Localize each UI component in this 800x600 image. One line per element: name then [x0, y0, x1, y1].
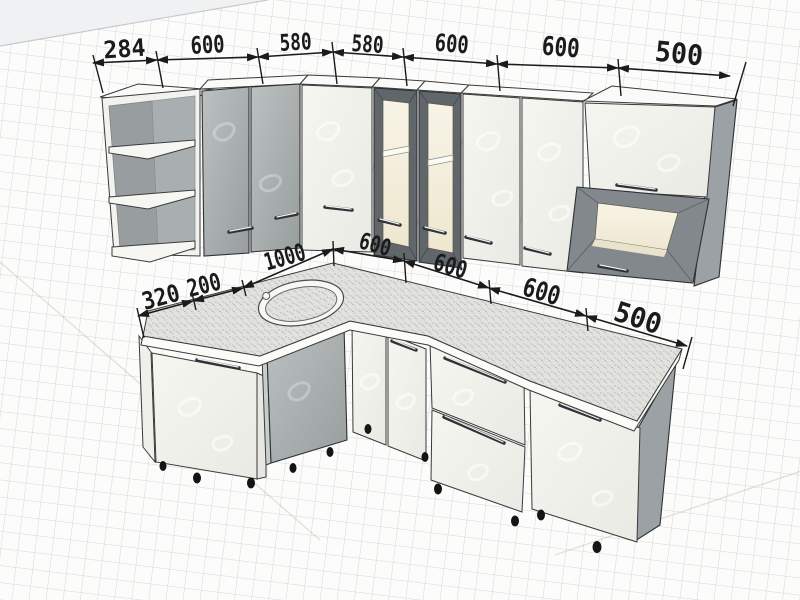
cabinet-foot [160, 461, 167, 471]
cabinet-foot [434, 484, 442, 495]
wall-cabinets [100, 75, 737, 286]
cabinet-foot [365, 424, 372, 434]
angled-door [152, 353, 257, 479]
extension-line [333, 241, 334, 266]
cabinet-foot [511, 516, 519, 527]
wall-glass-cabinet-2 [419, 91, 461, 268]
kitchen-drawing: 284 600 580 580 600 600 500 [0, 0, 800, 600]
wall-corner-door-cabinet [302, 85, 372, 252]
cabinet-foot [537, 510, 545, 521]
cabinet-foot [422, 452, 429, 462]
cabinet-foot [193, 473, 201, 484]
cabinet-foot [247, 478, 255, 489]
dim-label-wall-0: 284 [103, 34, 147, 65]
dim-label-wall-1: 600 [190, 30, 225, 60]
flip-up-door [585, 103, 715, 197]
dim-label-wall-4: 600 [434, 29, 470, 60]
dim-label-wall-2: 580 [279, 29, 312, 57]
gray-door [251, 84, 300, 252]
corner-door [302, 85, 372, 252]
shelf-unit-back-right [152, 96, 195, 250]
wall-white-double-door-cabinet [463, 94, 583, 273]
wall-cabinet-gray-doors [202, 84, 300, 256]
cabinet-foot [290, 463, 297, 473]
white-door [388, 334, 426, 461]
dim-label-wall-6: 500 [653, 35, 704, 73]
wall-open-shelf-unit [102, 89, 200, 262]
dim-label-wall-3: 580 [351, 31, 385, 59]
wall-microwave-niche-cabinet [567, 100, 737, 286]
kitchen-layout-screenshot: 284 600 580 580 600 600 500 [0, 0, 800, 600]
cabinet-foot [593, 541, 602, 553]
cabinet-foot [327, 447, 334, 457]
dim-label-wall-5: 600 [540, 31, 580, 64]
